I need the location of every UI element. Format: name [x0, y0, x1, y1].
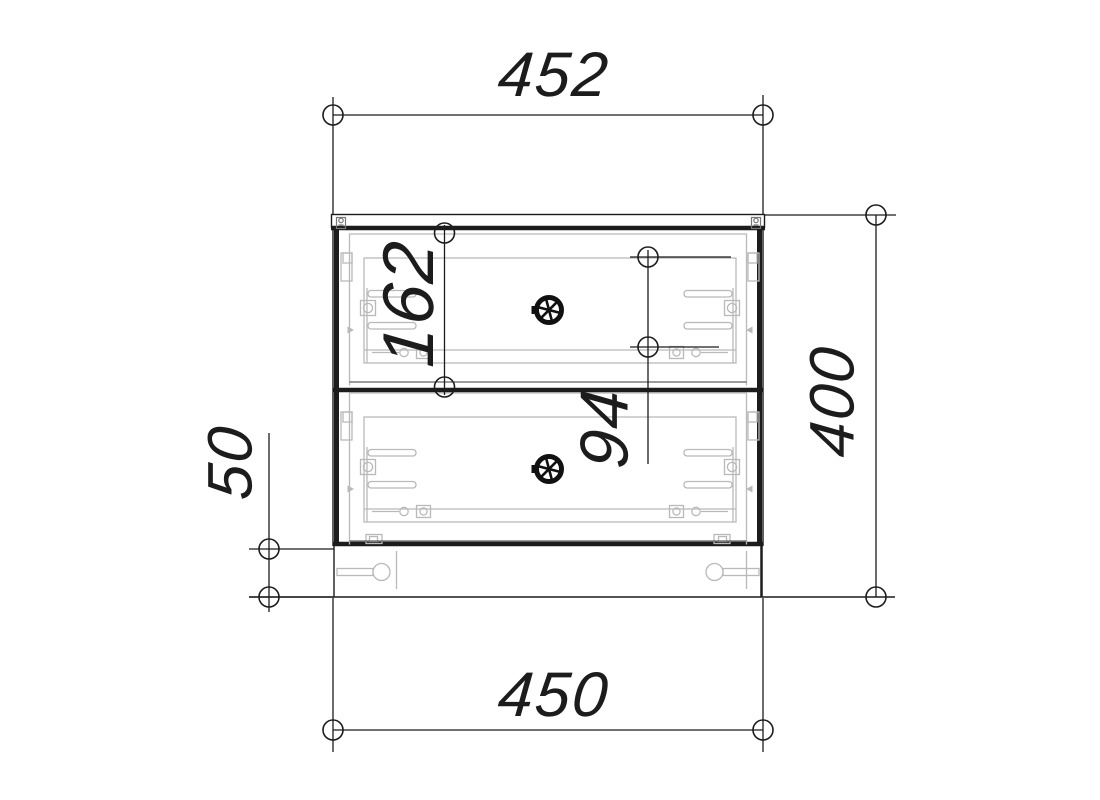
- bottom-drawer-internals: [341, 393, 759, 545]
- dimension-plinth-height: 50: [196, 422, 334, 612]
- dimension-drawer-front-height: 162: [369, 223, 454, 397]
- dimension-overall-height: 400: [765, 205, 896, 607]
- dimension-label-drawer-box-height: 94: [567, 385, 643, 471]
- dimension-bottom-width: 450: [323, 598, 773, 752]
- dimension-top-width: 452: [323, 40, 773, 214]
- dimension-label-plinth-height: 50: [196, 422, 266, 502]
- technical-drawing-page: 452 450 400 50 162 9: [0, 0, 1100, 800]
- dimension-label-overall-height: 400: [798, 343, 868, 460]
- dimension-label-bottom-width: 450: [495, 660, 612, 730]
- countertop-outline: [332, 215, 765, 228]
- dimension-label-drawer-front-height: 162: [369, 237, 449, 370]
- dimension-label-top-width: 452: [495, 40, 612, 110]
- dimension-drawer-box-height: 94: [567, 247, 731, 471]
- cad-canvas: 452 450 400 50 162 9: [0, 0, 1100, 800]
- countertop: [331, 215, 765, 229]
